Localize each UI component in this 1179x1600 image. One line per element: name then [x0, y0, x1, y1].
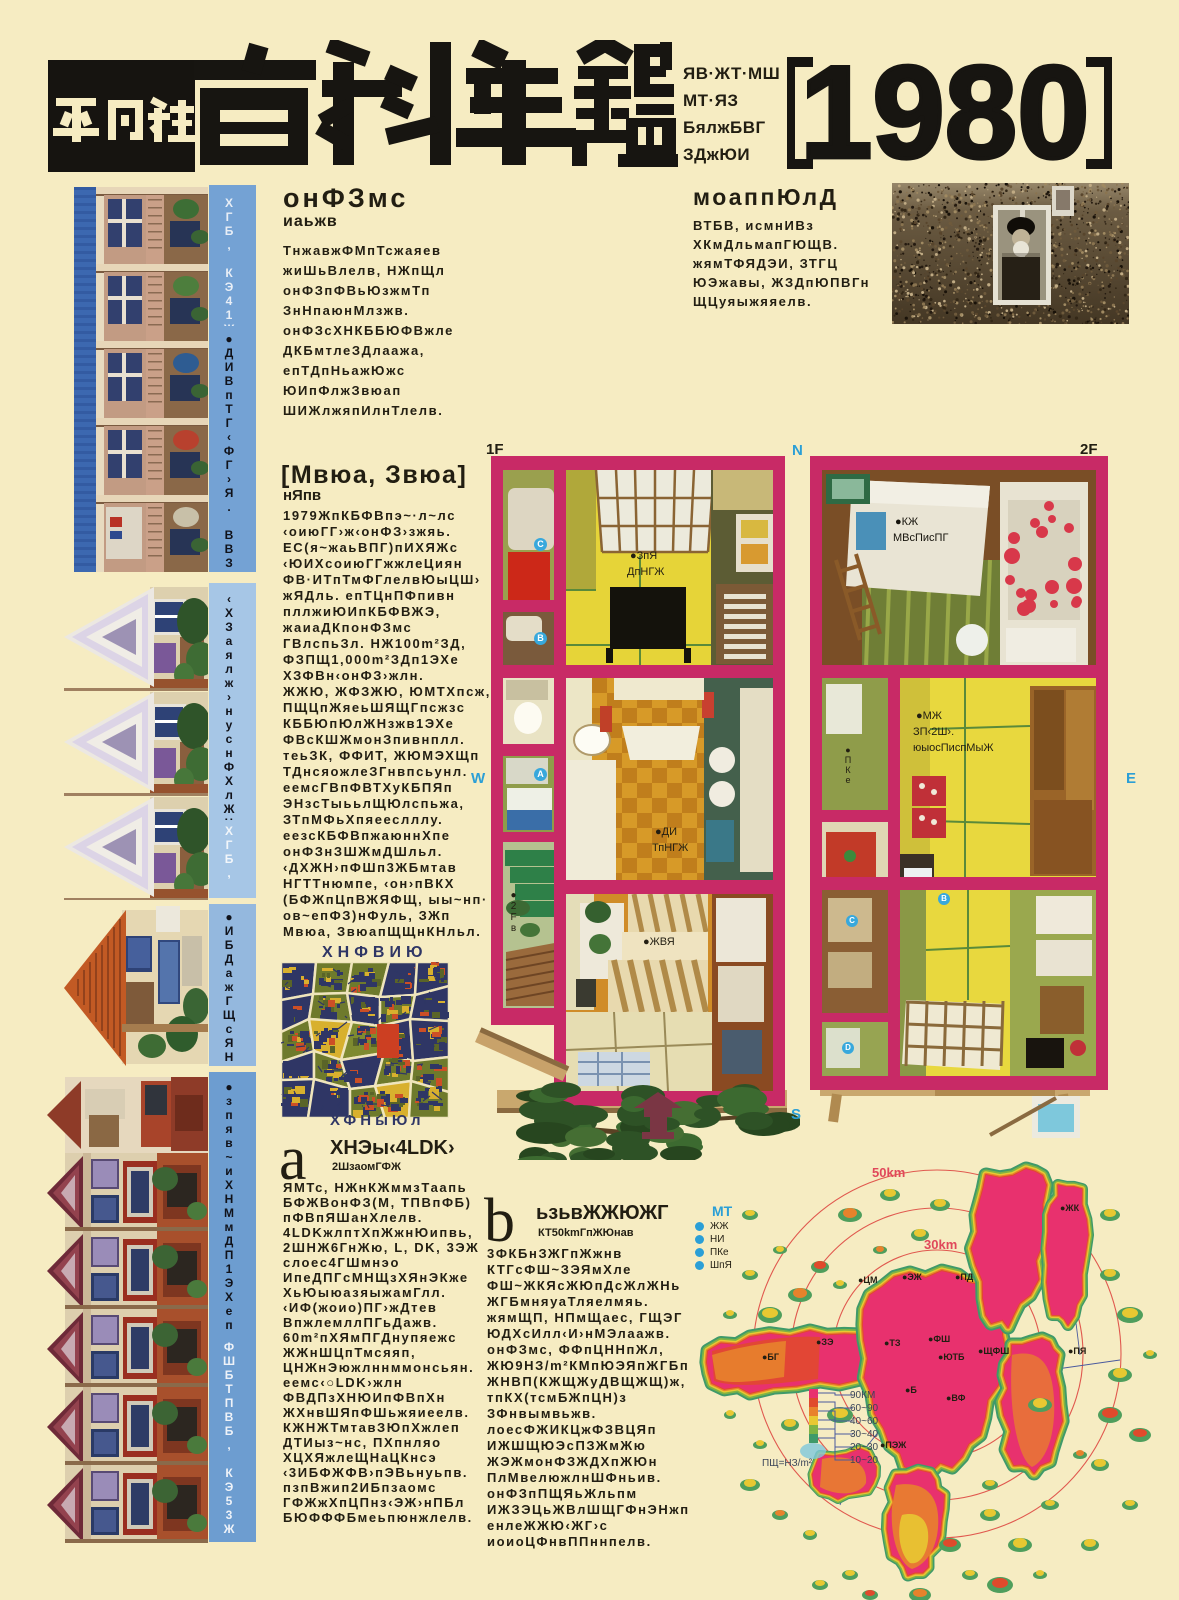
svg-text:50km: 50km: [872, 1165, 905, 1180]
svg-text:30km: 30km: [924, 1237, 957, 1252]
